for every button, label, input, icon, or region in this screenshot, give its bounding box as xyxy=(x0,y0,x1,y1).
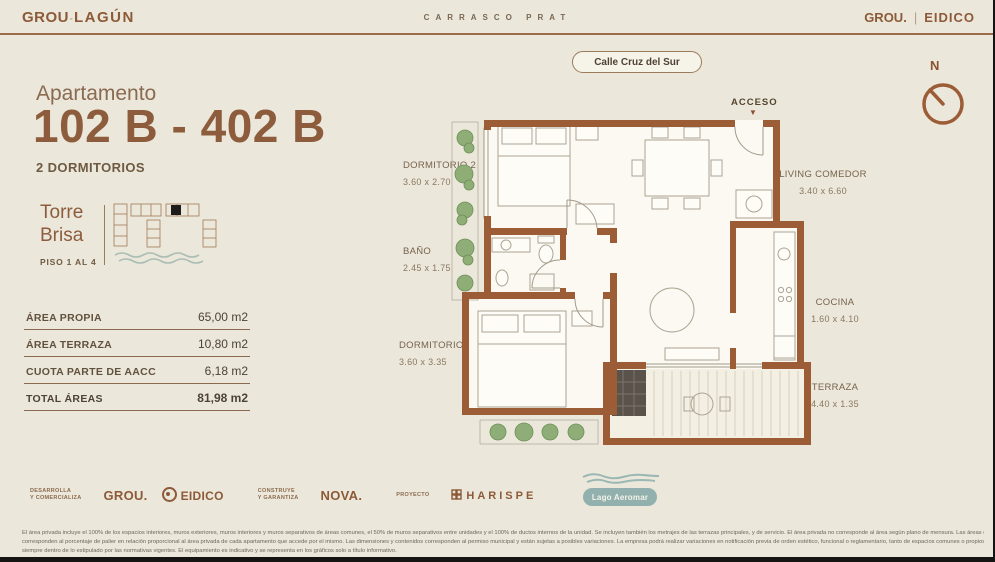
tower-divider xyxy=(104,205,105,265)
minimap-waves xyxy=(115,253,203,263)
planter-bottom xyxy=(480,420,598,444)
area-value: 81,98 m2 xyxy=(197,391,248,405)
legal-line: siempre dentro de lo estipulado por las … xyxy=(22,547,984,556)
credit-role-build: Construye y garantiza xyxy=(258,488,299,502)
access-label: ACCESO xyxy=(731,97,778,108)
eidico-label: EIDICO xyxy=(181,489,224,503)
street-badge: Calle Cruz del Sur xyxy=(572,51,702,73)
area-label: CUOTA PARTE DE AACC xyxy=(26,366,156,378)
brochure-page: GROU◦LAGÚN CARRASCO PRAT GROU.|EIDICO Ap… xyxy=(0,0,995,562)
compass-north-label: N xyxy=(930,58,939,73)
tower-floors: PISO 1 AL 4 xyxy=(40,257,97,267)
credit-brand-harispe: HARISPE xyxy=(451,489,536,502)
area-value: 6,18 m2 xyxy=(205,364,248,378)
parrillero xyxy=(612,370,646,416)
site-minimap xyxy=(113,203,223,267)
table-row: CUOTA PARTE DE AACC 6,18 m2 xyxy=(24,357,250,384)
table-row-total: TOTAL ÁREAS 81,98 m2 xyxy=(24,384,250,411)
apartment-title: 102 B - 402 B xyxy=(33,99,326,153)
compass-icon xyxy=(918,79,968,129)
lake-badge: Lago Aeromar xyxy=(583,488,657,506)
credits-row: Desarrolla y comercializa GROU. EIDICO C… xyxy=(30,487,536,503)
legal-line: El área privada incluye el 100% de los e… xyxy=(22,529,984,538)
credit-brand-grou: GROU. xyxy=(103,488,147,503)
table-row: ÁREA PROPIA 65,00 m2 xyxy=(24,303,250,330)
room-name: BAÑO xyxy=(403,246,431,257)
harispe-logo-icon xyxy=(451,489,462,500)
brand-grou-eidico: GROU.|EIDICO xyxy=(864,10,975,25)
frame-edge-bottom xyxy=(0,557,995,562)
brand-eidico-text: EIDICO xyxy=(924,10,975,25)
credit-brand-eidico: EIDICO xyxy=(162,487,224,503)
legal-text: El área privada incluye el 100% de los e… xyxy=(22,529,984,556)
lake-waves-icon xyxy=(581,471,661,486)
brand-grou-right-text: GROU. xyxy=(864,10,907,25)
header-bar: GROU◦LAGÚN CARRASCO PRAT GROU.|EIDICO xyxy=(0,0,995,35)
legal-line: corresponden al porcentaje de palier en … xyxy=(22,538,984,547)
tower-name: Torre Brisa xyxy=(40,201,83,247)
areas-table: ÁREA PROPIA 65,00 m2 ÁREA TERRAZA 10,80 … xyxy=(24,303,250,411)
brand-divider: | xyxy=(914,10,917,25)
project-name: CARRASCO PRAT xyxy=(0,13,995,22)
bedrooms-label: 2 DORMITORIOS xyxy=(36,160,145,175)
harispe-label: HARISPE xyxy=(466,490,536,502)
area-label: ÁREA TERRAZA xyxy=(26,339,112,351)
credit-brand-nova: NOVA. xyxy=(321,488,363,503)
table-row: ÁREA TERRAZA 10,80 m2 xyxy=(24,330,250,357)
area-label: TOTAL ÁREAS xyxy=(26,393,103,405)
eidico-logo-icon xyxy=(162,487,177,502)
planter-left xyxy=(452,122,478,300)
credit-role-develop: Desarrolla y comercializa xyxy=(30,488,81,502)
area-value: 65,00 m2 xyxy=(198,310,248,324)
credit-role-project: Proyecto xyxy=(396,492,429,499)
area-value: 10,80 m2 xyxy=(198,337,248,351)
area-label: ÁREA PROPIA xyxy=(26,312,102,324)
minimap-buildings xyxy=(114,204,216,247)
floor-plan-drawing xyxy=(440,108,835,463)
minimap-highlighted-unit xyxy=(171,205,181,215)
